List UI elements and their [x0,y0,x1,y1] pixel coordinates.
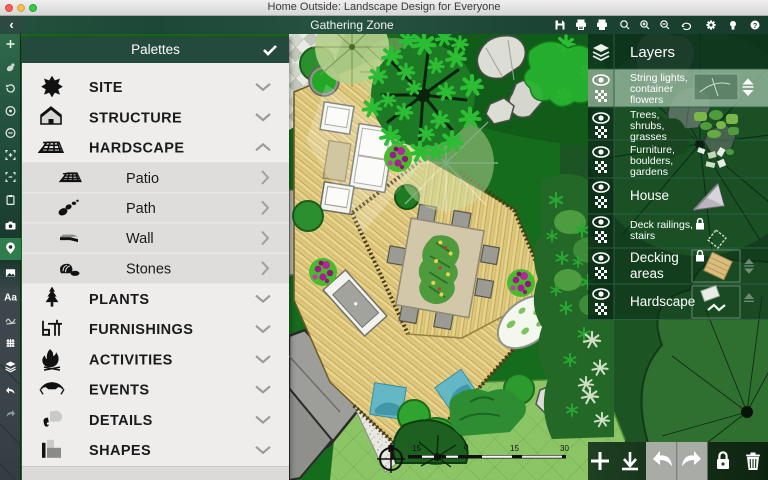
svg-text:grasses: grasses [630,131,667,143]
svg-text:DETAILS: DETAILS [89,413,153,429]
svg-text:Wall: Wall [126,231,154,247]
svg-text:SHAPES: SHAPES [89,443,151,459]
svg-text:FURNISHINGS: FURNISHINGS [89,322,193,338]
svg-text:30: 30 [560,444,569,453]
svg-text:Aa: Aa [4,293,17,304]
svg-text:Stones: Stones [126,262,171,278]
svg-text:flowers: flowers [630,94,663,106]
svg-text:HARDSCAPE: HARDSCAPE [89,141,184,157]
svg-text:areas: areas [630,266,664,281]
svg-text:House: House [630,188,669,203]
svg-text:Hardscape: Hardscape [630,294,695,309]
svg-text:Layers: Layers [630,44,675,61]
svg-text:STRUCTURE: STRUCTURE [89,110,182,126]
svg-text:15: 15 [510,444,519,453]
svg-text:gardens: gardens [630,166,668,178]
svg-text:Patio: Patio [126,171,159,187]
svg-text:SITE: SITE [89,80,123,96]
svg-text:15: 15 [412,444,421,453]
svg-text:?: ? [753,21,758,30]
svg-text:EVENTS: EVENTS [89,383,149,399]
svg-text:PLANTS: PLANTS [89,292,149,308]
svg-text:Decking: Decking [630,250,679,265]
svg-text:ACTIVITIES: ACTIVITIES [89,352,173,368]
svg-text:stairs: stairs [630,230,655,242]
svg-text:0: 0 [464,443,469,452]
svg-text:Path: Path [126,201,156,217]
